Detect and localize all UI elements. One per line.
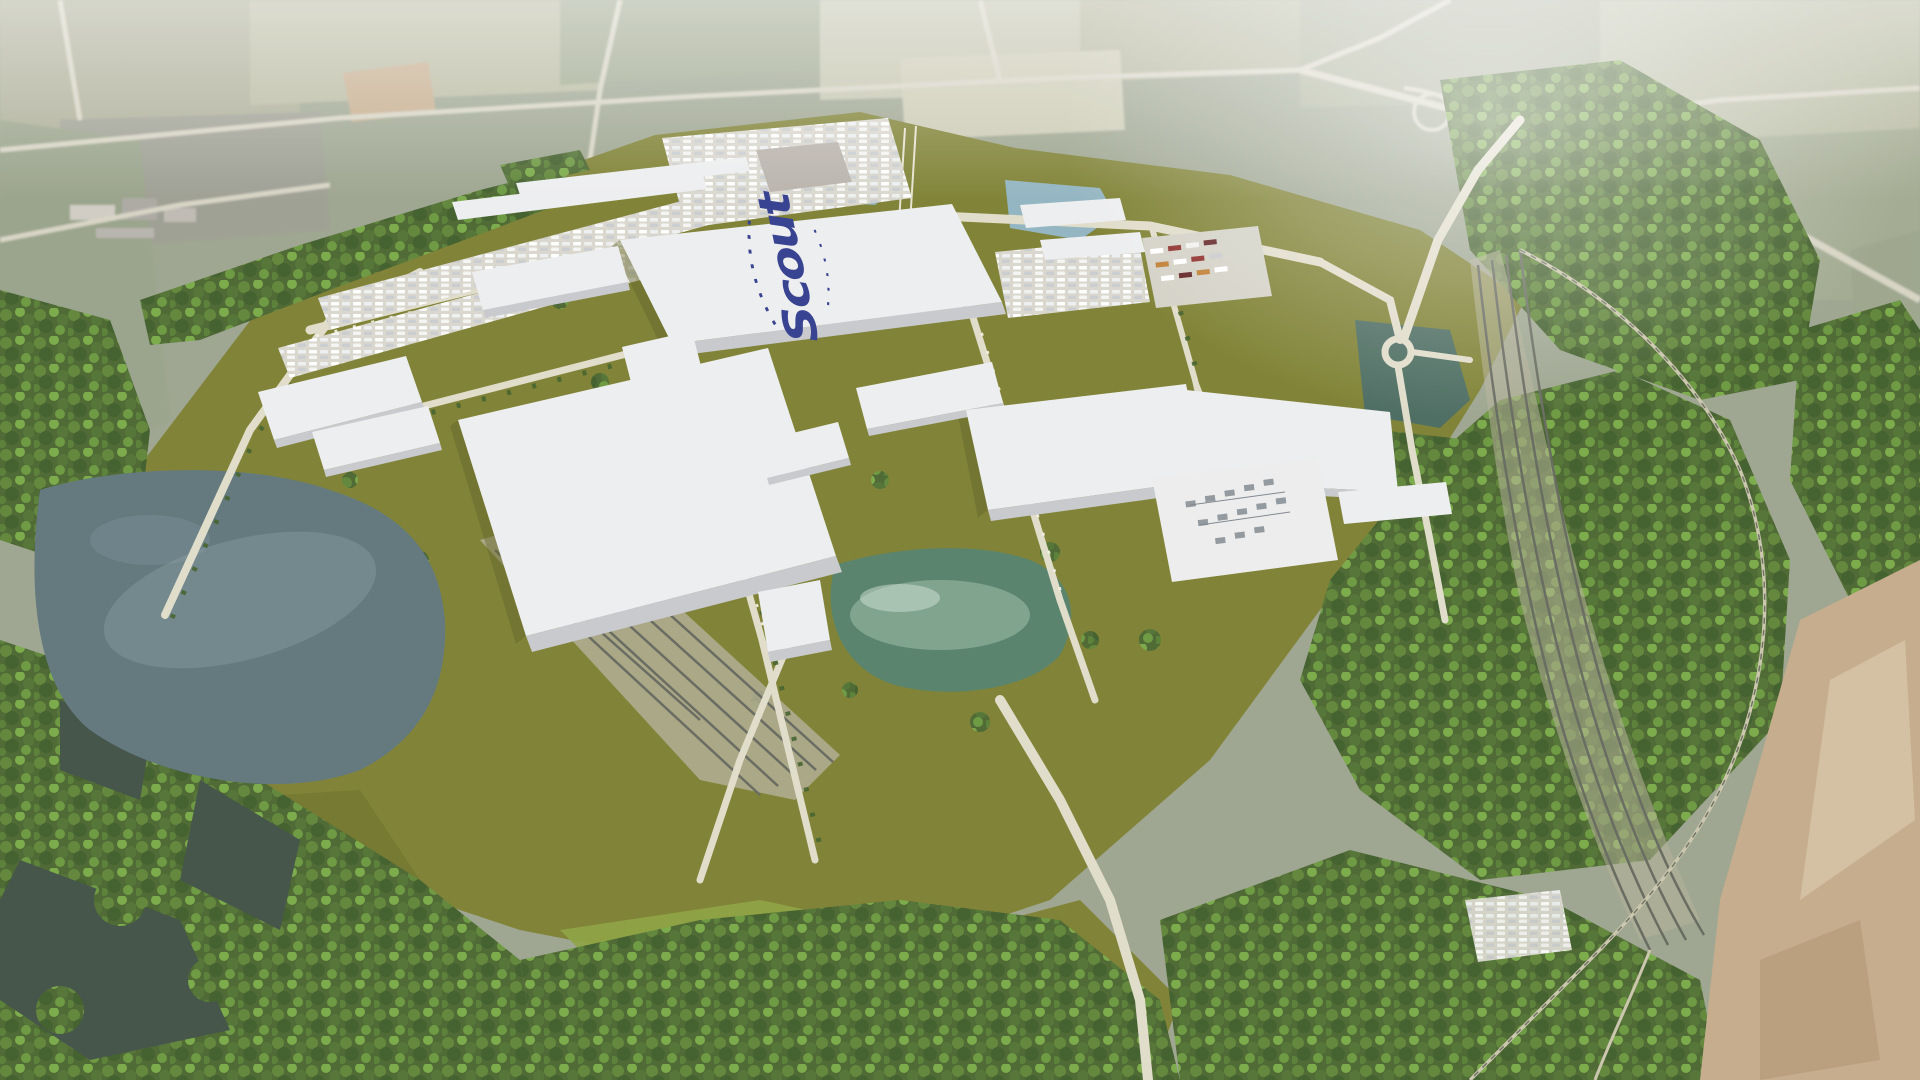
haze-global <box>0 0 1920 1080</box>
site-rendering-canvas: Scout <box>0 0 1920 1080</box>
aerial-rendering-stage: Scout <box>0 0 1920 1080</box>
